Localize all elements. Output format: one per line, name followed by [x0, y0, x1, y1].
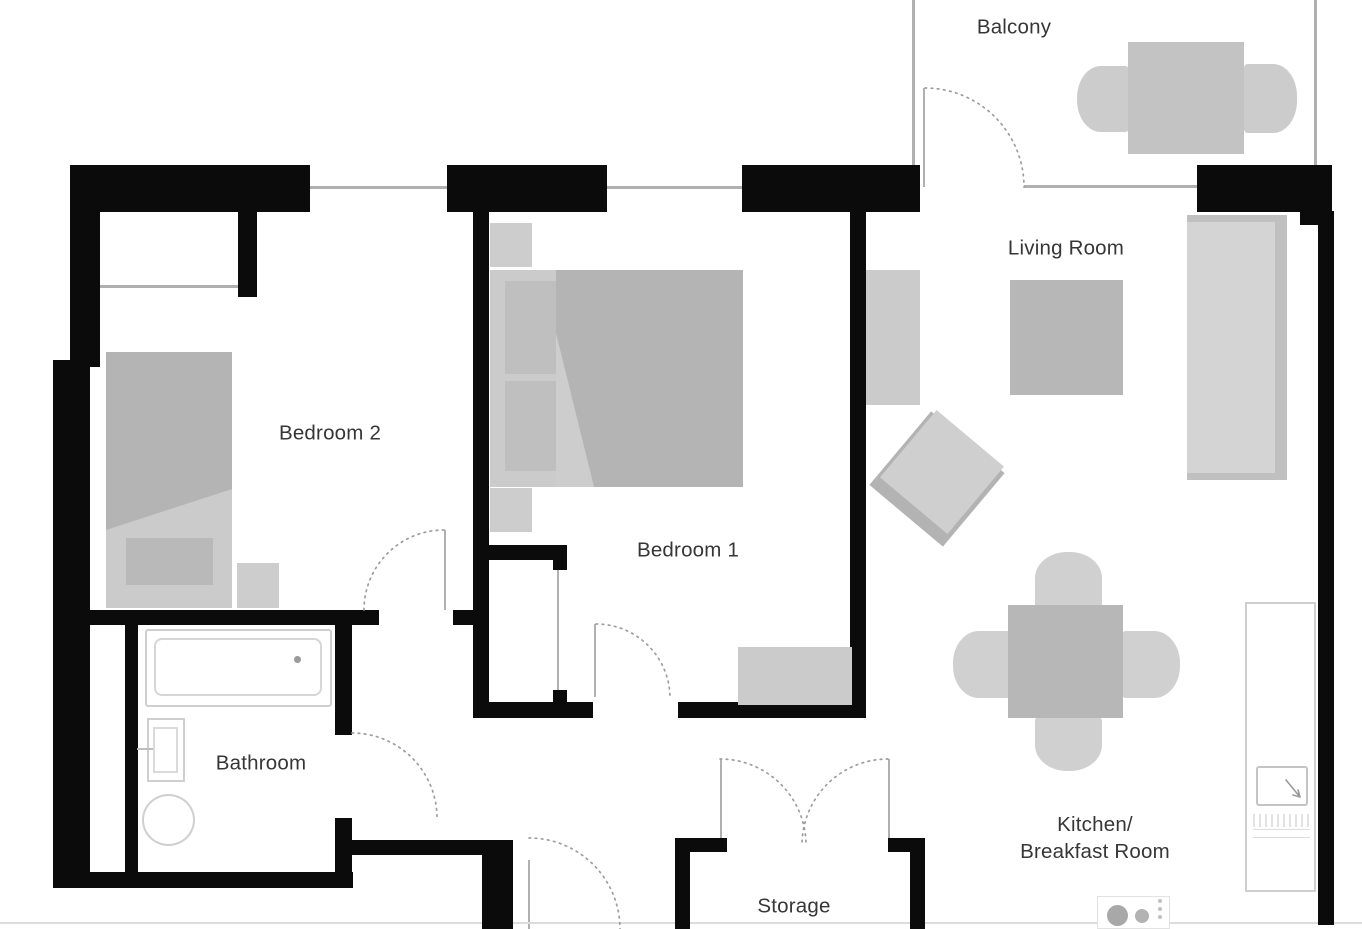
- door-arc-storage-right: [802, 759, 888, 845]
- dining-chair: [1122, 631, 1180, 698]
- balcony-chair: [1077, 66, 1129, 132]
- bed-pillow: [505, 281, 558, 374]
- wardrobe-front-line: [557, 560, 559, 700]
- dining-chair: [1035, 717, 1102, 771]
- kitchen-counter: [1245, 602, 1316, 892]
- window-balcony-glazing: [1024, 185, 1197, 188]
- wall-top-bedroom2: [70, 165, 310, 212]
- door-arc-bedroom2: [364, 530, 444, 610]
- wall-right-step: [1300, 211, 1318, 225]
- wall-bedroom1-right: [850, 212, 866, 718]
- tv-unit: [866, 270, 920, 405]
- bathtub-drain: [294, 656, 301, 663]
- wall-left-upper: [70, 212, 100, 367]
- wall-bedroom-divider: [473, 212, 489, 718]
- label-bedroom1: Bedroom 1: [637, 537, 739, 564]
- dresser: [738, 647, 852, 705]
- label-kitchen-line2: Breakfast Room: [1020, 838, 1170, 865]
- bed-pillow: [505, 381, 558, 471]
- label-storage: Storage: [757, 893, 830, 920]
- door-leaf-storage-left: [720, 759, 722, 845]
- window-bedroom2-top: [308, 186, 447, 189]
- wall-bathroom-right-upper: [335, 625, 352, 735]
- door-arc-balcony: [925, 88, 1024, 187]
- bed-pillow: [126, 538, 213, 585]
- door-arc-bedroom1: [596, 624, 670, 698]
- coffee-table: [1010, 280, 1123, 395]
- cooktop-knob-dot: [1158, 899, 1162, 903]
- sofa-seat: [1187, 222, 1275, 473]
- bathtub-inner: [154, 638, 322, 696]
- balcony-rail-left: [912, 0, 915, 187]
- label-bathroom: Bathroom: [216, 750, 306, 777]
- cooktop-burner-large: [1107, 905, 1128, 926]
- window-bedroom2-bay-sill: [100, 285, 242, 288]
- label-kitchen: Kitchen/ Breakfast Room: [1020, 811, 1170, 865]
- door-arc-storage-left: [720, 759, 806, 845]
- door-arc-entry: [529, 838, 620, 929]
- wall-right-outer: [1318, 211, 1334, 925]
- door-leaf-entry: [528, 860, 530, 929]
- wall-window-stub: [238, 212, 257, 297]
- window-bedroom1-top: [607, 186, 742, 189]
- kitchen-shelf: [1253, 829, 1310, 838]
- wall-storage-right-vertical: [910, 838, 925, 929]
- wall-top-living-left: [742, 165, 920, 212]
- wall-top-bedroom1: [447, 165, 607, 212]
- wall-entry-left: [482, 855, 513, 929]
- toilet: [142, 794, 195, 846]
- label-kitchen-line1: Kitchen/: [1020, 811, 1170, 838]
- wall-bathroom-bottom: [53, 872, 353, 888]
- cooktop-burner-small: [1135, 909, 1149, 923]
- floor-plan: Balcony Living Room Bedroom 2 Bedroom 1 …: [0, 0, 1362, 929]
- dining-table: [1008, 605, 1123, 718]
- wall-hall-bottom: [335, 840, 513, 855]
- dining-chair: [1035, 552, 1102, 608]
- wall-bedroom1-bottom-left: [473, 702, 593, 718]
- label-balcony: Balcony: [977, 14, 1051, 41]
- label-living-room: Living Room: [1008, 235, 1124, 262]
- cooktop-knob-dot: [1158, 915, 1162, 919]
- balcony-chair: [1244, 64, 1297, 133]
- wall-left-outer: [53, 360, 90, 888]
- nightstand: [237, 563, 279, 608]
- label-bedroom2: Bedroom 2: [279, 420, 381, 447]
- washbasin-inner: [153, 727, 178, 773]
- door-leaf-storage-right: [888, 759, 890, 845]
- door-arc-bathroom: [352, 733, 437, 818]
- balcony-rail-right: [1314, 0, 1317, 166]
- wall-top-living-right: [1197, 165, 1332, 212]
- balcony-table: [1128, 42, 1244, 154]
- wall-storage-left-arm: [675, 838, 727, 852]
- cooktop-knob-dot: [1158, 907, 1162, 911]
- armchair-seat: [880, 410, 1004, 534]
- nightstand: [490, 488, 532, 532]
- dining-chair: [953, 631, 1011, 698]
- door-leaf-balcony: [923, 88, 925, 187]
- kitchen-drainer: [1253, 814, 1310, 827]
- washbasin-tap: [137, 748, 153, 750]
- wall-bathroom-inner-left: [125, 625, 138, 875]
- door-leaf-bedroom1: [594, 624, 596, 697]
- wall-bedroom2-door-stub: [453, 610, 475, 625]
- nightstand: [490, 223, 532, 267]
- wall-wardrobe-stub-top: [553, 558, 567, 570]
- wall-bedroom2-bottom: [87, 610, 379, 625]
- door-leaf-bedroom2: [444, 530, 446, 610]
- kitchen-sink: [1256, 766, 1308, 806]
